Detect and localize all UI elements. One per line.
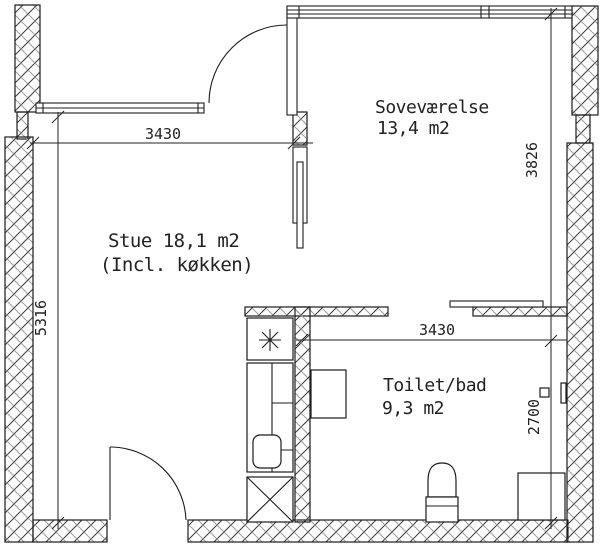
toilet-bowl xyxy=(426,463,458,522)
floor-plan: 3430 5316 3826 3430 2700 Soveværelse 13,… xyxy=(0,0,600,550)
dim-living-depth: 5316 xyxy=(32,111,64,529)
bath-name-label: Toilet/bad xyxy=(383,375,486,396)
washing-machine xyxy=(311,370,346,418)
wall-pillar-stem xyxy=(17,112,28,139)
bedroom-sliding-door xyxy=(293,147,307,248)
wall-bottom xyxy=(188,520,568,542)
terrace-door xyxy=(110,447,186,520)
wall-bedroom-door-block xyxy=(293,112,307,145)
living-name-label: Stue 18,1 m2 xyxy=(108,230,239,252)
wall-right-upper xyxy=(572,6,598,115)
wall-bath-north-right xyxy=(473,307,567,316)
dim-living-depth-label: 5316 xyxy=(32,300,50,336)
bedroom-sliding-door-leaf xyxy=(297,162,303,248)
terrace-door-swing-arc xyxy=(110,447,186,520)
living-window xyxy=(36,103,204,113)
dim-living-width: 3430 xyxy=(27,125,313,149)
wall-pillar-top-left xyxy=(15,5,40,112)
walls xyxy=(5,5,598,542)
bedroom-window-frame xyxy=(287,6,572,18)
wall-bath-north-left xyxy=(245,307,388,316)
bath-area-label: 9,3 m2 xyxy=(382,398,444,419)
dim-bath-width: 3430 xyxy=(296,321,567,346)
kitchen-unit xyxy=(247,318,293,522)
bedroom-name-label: Soveværelse xyxy=(375,97,489,118)
bedroom-window xyxy=(287,6,572,18)
entry-door-leaf xyxy=(287,8,297,115)
wall-bottom-left xyxy=(33,520,107,542)
wall-right-lower xyxy=(567,143,593,542)
toilet-bowl-base xyxy=(426,497,458,522)
stove-symbol xyxy=(259,329,281,351)
toilet-bowl-tank xyxy=(428,463,456,497)
shower-unit xyxy=(518,473,565,520)
wall-left xyxy=(5,137,33,542)
dim-living-width-label: 3430 xyxy=(145,125,181,143)
entry-door xyxy=(209,8,297,115)
wall-radiator xyxy=(561,383,566,403)
entry-door-swing-arc xyxy=(209,25,287,103)
bedroom-area-label: 13,4 m2 xyxy=(377,118,449,139)
dim-bath-width-label: 3430 xyxy=(419,321,455,339)
dim-bath-depth-label: 2700 xyxy=(525,399,543,435)
living-note-label: (Incl. køkken) xyxy=(100,254,253,276)
dim-bedroom-depth: 3826 xyxy=(523,8,557,347)
wall-right-jog xyxy=(576,115,590,143)
dim-bedroom-depth-label: 3826 xyxy=(523,142,541,178)
kitchen-sink xyxy=(253,435,281,468)
bath-sliding-door-leaf xyxy=(450,301,543,307)
wall-socket xyxy=(540,388,549,397)
floor-plan-canvas: 3430 5316 3826 3430 2700 Soveværelse 13,… xyxy=(0,0,600,550)
